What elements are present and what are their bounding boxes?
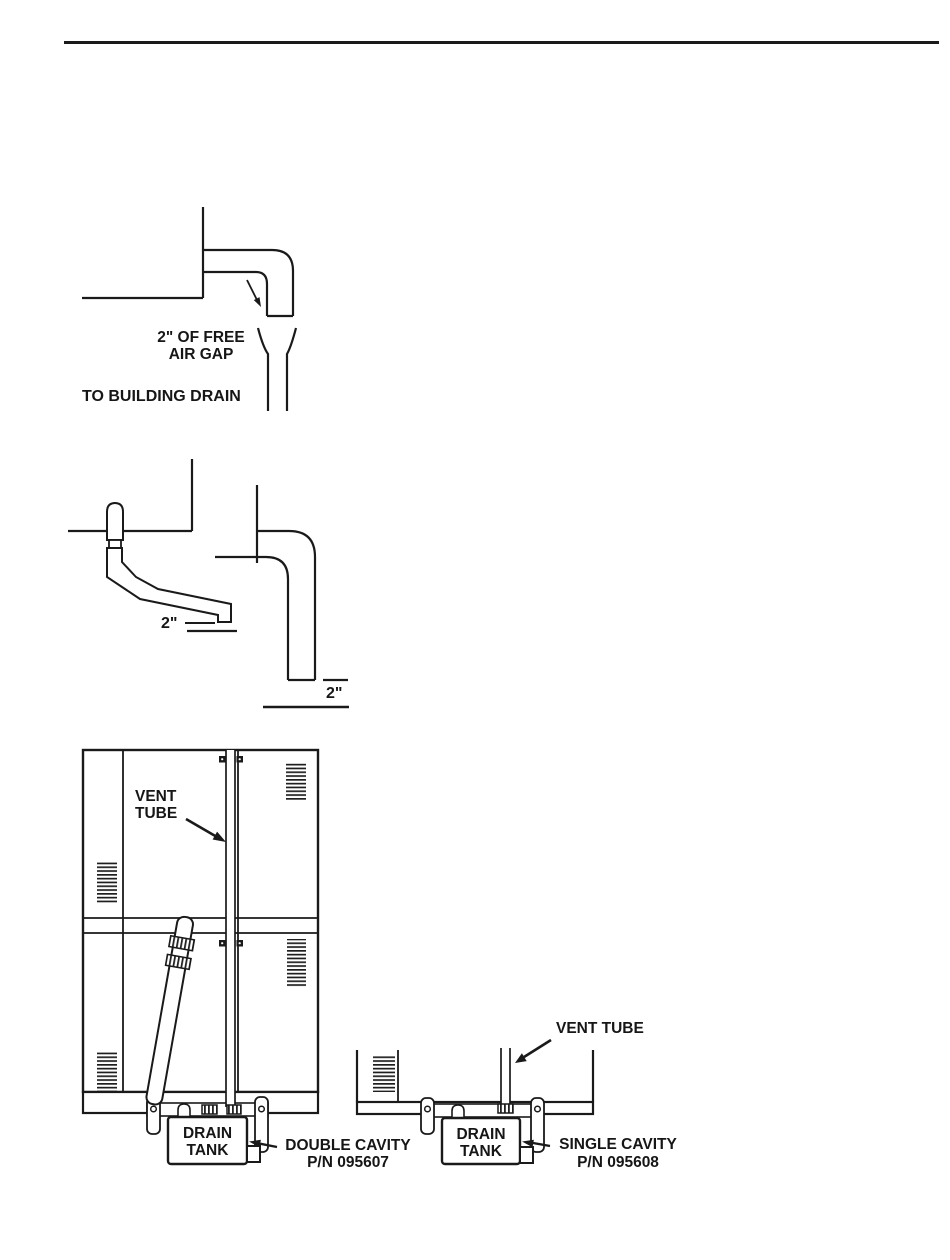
gap-measurement-label-left: 2" <box>161 615 177 633</box>
vent-grille <box>97 1051 117 1091</box>
diagrams-canvas <box>0 0 950 1260</box>
building-drain-label: TO BUILDING DRAIN <box>82 388 241 406</box>
clip-dot <box>221 758 223 760</box>
hose-tank-clamp <box>202 1105 217 1114</box>
vent-tube-arrow-line <box>524 1040 551 1057</box>
cabinet-outline <box>83 750 318 1092</box>
single-cavity-caption-line2: P/N 095608 <box>551 1154 685 1172</box>
drain-tank-line2: TANK <box>168 1142 247 1159</box>
bracket-screw-icon <box>259 1106 265 1112</box>
standpipe-cap <box>107 503 123 540</box>
drain-tank-label-double: DRAIN TANK <box>168 1125 247 1159</box>
tank-outlet-stub <box>247 1146 260 1162</box>
air-gap-label-line2: AIR GAP <box>141 346 261 363</box>
bracket-tab <box>178 1104 190 1116</box>
drain-tank-line1: DRAIN <box>168 1125 247 1142</box>
angled-drain-hose <box>107 548 231 622</box>
bracket-tab <box>452 1105 464 1117</box>
bracket-hook-left <box>421 1098 434 1134</box>
gap-measurement-label-right: 2" <box>326 685 342 703</box>
vent-grille <box>287 939 306 988</box>
clip-dot <box>239 942 241 944</box>
air-gap-arrow-icon <box>254 297 261 307</box>
figure-standpipe <box>68 459 349 707</box>
air-gap-label-line1: 2" OF FREE <box>141 329 261 346</box>
vent-tube-arrow-icon <box>515 1053 527 1063</box>
drain-tank-line2: TANK <box>442 1143 520 1160</box>
air-gap-label: 2" OF FREE AIR GAP <box>141 329 261 363</box>
vent-tube-body <box>501 1048 510 1104</box>
figure-air-gap <box>82 207 296 411</box>
clip-dot <box>239 758 241 760</box>
double-cavity-caption-line1: DOUBLE CAVITY <box>277 1137 419 1154</box>
figure-double-cavity <box>83 750 318 1164</box>
tank-bracket-bar <box>424 1104 541 1117</box>
double-cavity-caption-line2: P/N 095607 <box>277 1154 419 1171</box>
vent-tube-label-double: VENT TUBE <box>135 789 177 822</box>
vent-grille <box>97 861 117 903</box>
vent-tube-label-single: VENT TUBE <box>556 1020 644 1038</box>
cap-coupling <box>109 540 121 548</box>
funnel-right <box>287 328 296 411</box>
vent-tube-label-line1: VENT <box>135 789 177 806</box>
double-cavity-caption: DOUBLE CAVITY P/N 095607 <box>277 1137 419 1171</box>
vent-tube-label-line2: TUBE <box>135 806 177 823</box>
bracket-screw-icon <box>151 1106 157 1112</box>
drain-pipe-inner <box>203 272 267 316</box>
bracket-screw-icon <box>425 1106 431 1112</box>
air-gap-arrow-line <box>247 280 258 302</box>
elbow-pipe-outer <box>257 531 315 680</box>
single-cavity-caption: SINGLE CAVITY P/N 095608 <box>551 1136 685 1171</box>
clip-dot <box>221 942 223 944</box>
tube-tank-clamp <box>227 1105 241 1114</box>
drain-tank-line1: DRAIN <box>442 1126 520 1143</box>
bracket-screw-icon <box>535 1106 541 1112</box>
vent-grille <box>373 1055 395 1092</box>
vent-tube-body <box>226 750 235 1107</box>
drain-tank-label-single: DRAIN TANK <box>442 1126 520 1160</box>
tube-tank-clamp <box>498 1104 513 1113</box>
single-cavity-caption-line1: SINGLE CAVITY <box>551 1136 685 1154</box>
vent-grille <box>286 763 306 801</box>
tank-outlet-stub <box>520 1147 533 1163</box>
manual-page: 2" OF FREE AIR GAP TO BUILDING DRAIN 2" … <box>0 0 950 1260</box>
